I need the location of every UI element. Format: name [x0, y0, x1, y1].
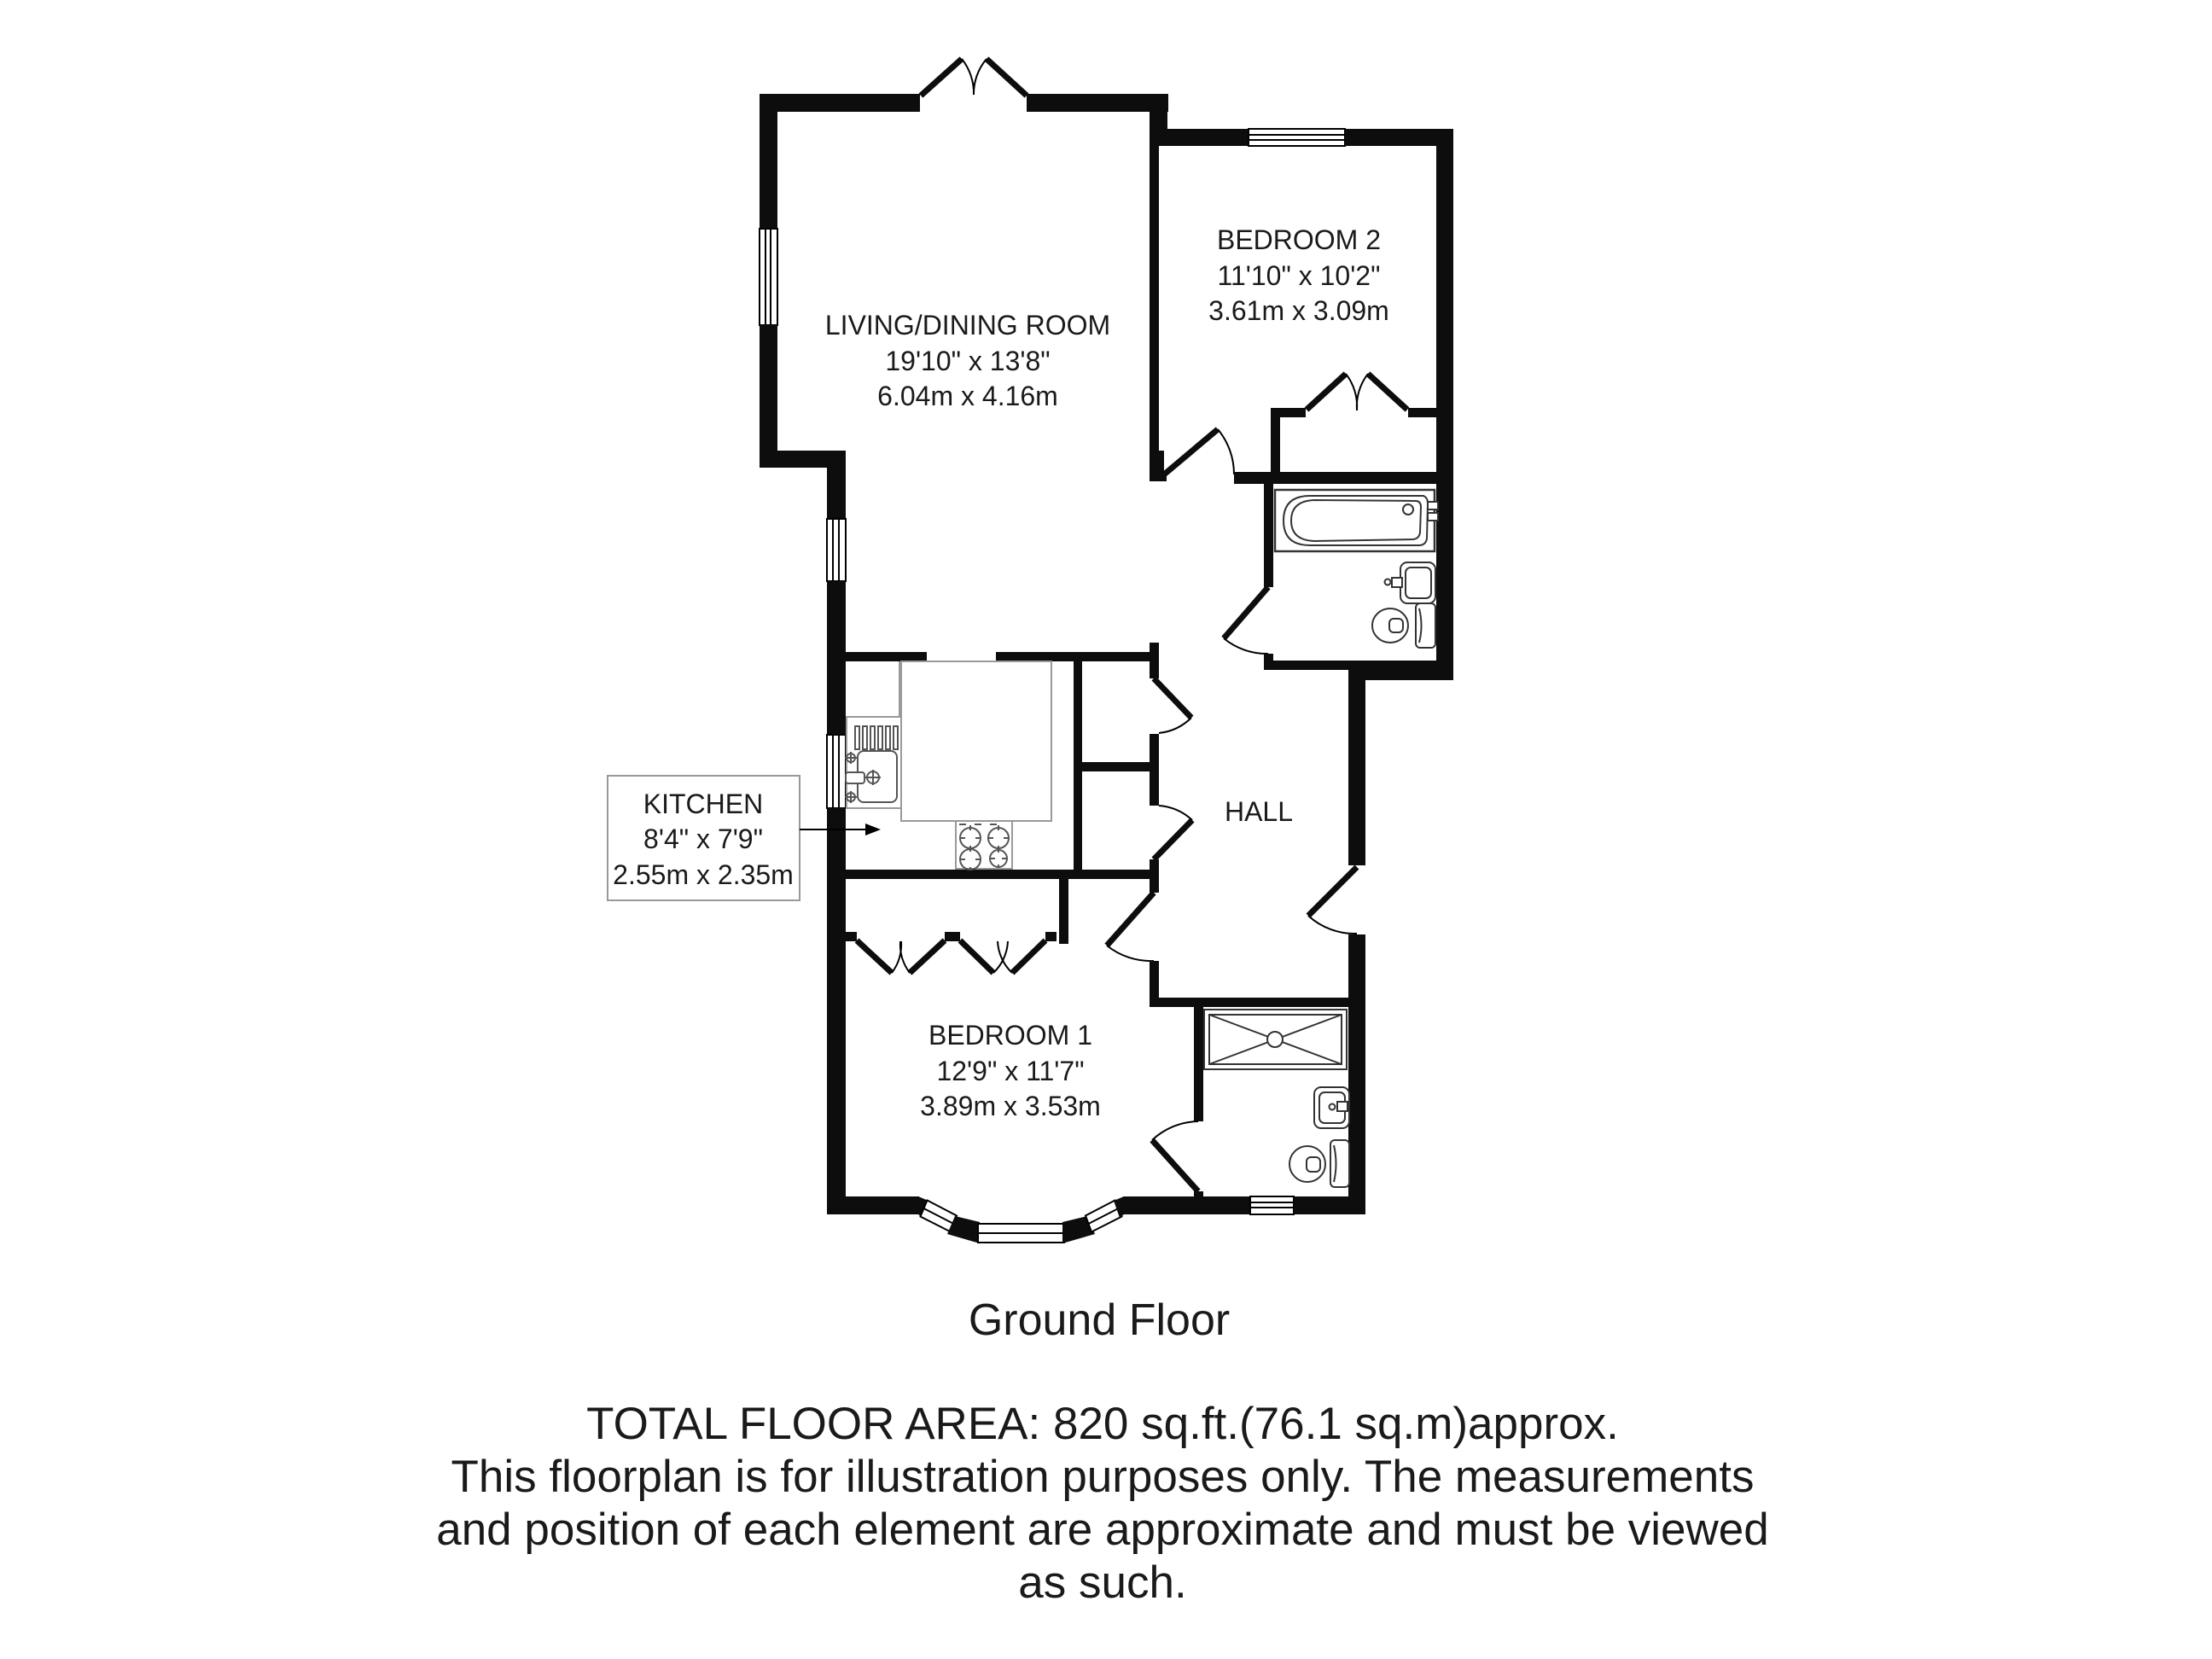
svg-text:11'10" x 10'2": 11'10" x 10'2" — [1218, 260, 1381, 291]
svg-text:LIVING/DINING ROOM: LIVING/DINING ROOM — [825, 310, 1110, 341]
svg-text:19'10" x 13'8": 19'10" x 13'8" — [885, 346, 1050, 376]
svg-text:12'9" x 11'7": 12'9" x 11'7" — [936, 1056, 1084, 1086]
svg-text:and position of each element a: and position of each element are approxi… — [436, 1505, 1769, 1555]
svg-text:BEDROOM 2: BEDROOM 2 — [1217, 224, 1381, 255]
svg-text:BEDROOM 1: BEDROOM 1 — [928, 1020, 1092, 1051]
svg-text:This floorplan is for illustra: This floorplan is for illustration purpo… — [451, 1452, 1755, 1502]
svg-text:2.55m x 2.35m: 2.55m x 2.35m — [613, 859, 794, 890]
svg-text:TOTAL FLOOR AREA: 820 sq.ft.(7: TOTAL FLOOR AREA: 820 sq.ft.(76.1 sq.m)a… — [586, 1399, 1619, 1449]
svg-text:3.89m x 3.53m: 3.89m x 3.53m — [920, 1091, 1101, 1121]
svg-text:3.61m x 3.09m: 3.61m x 3.09m — [1208, 295, 1389, 326]
svg-text:Ground Floor: Ground Floor — [969, 1295, 1230, 1345]
svg-text:HALL: HALL — [1225, 796, 1293, 827]
svg-text:8'4" x 7'9": 8'4" x 7'9" — [643, 824, 763, 854]
svg-text:as such.: as such. — [1018, 1557, 1186, 1608]
svg-text:KITCHEN: KITCHEN — [643, 789, 763, 819]
svg-text:6.04m x 4.16m: 6.04m x 4.16m — [877, 381, 1058, 411]
